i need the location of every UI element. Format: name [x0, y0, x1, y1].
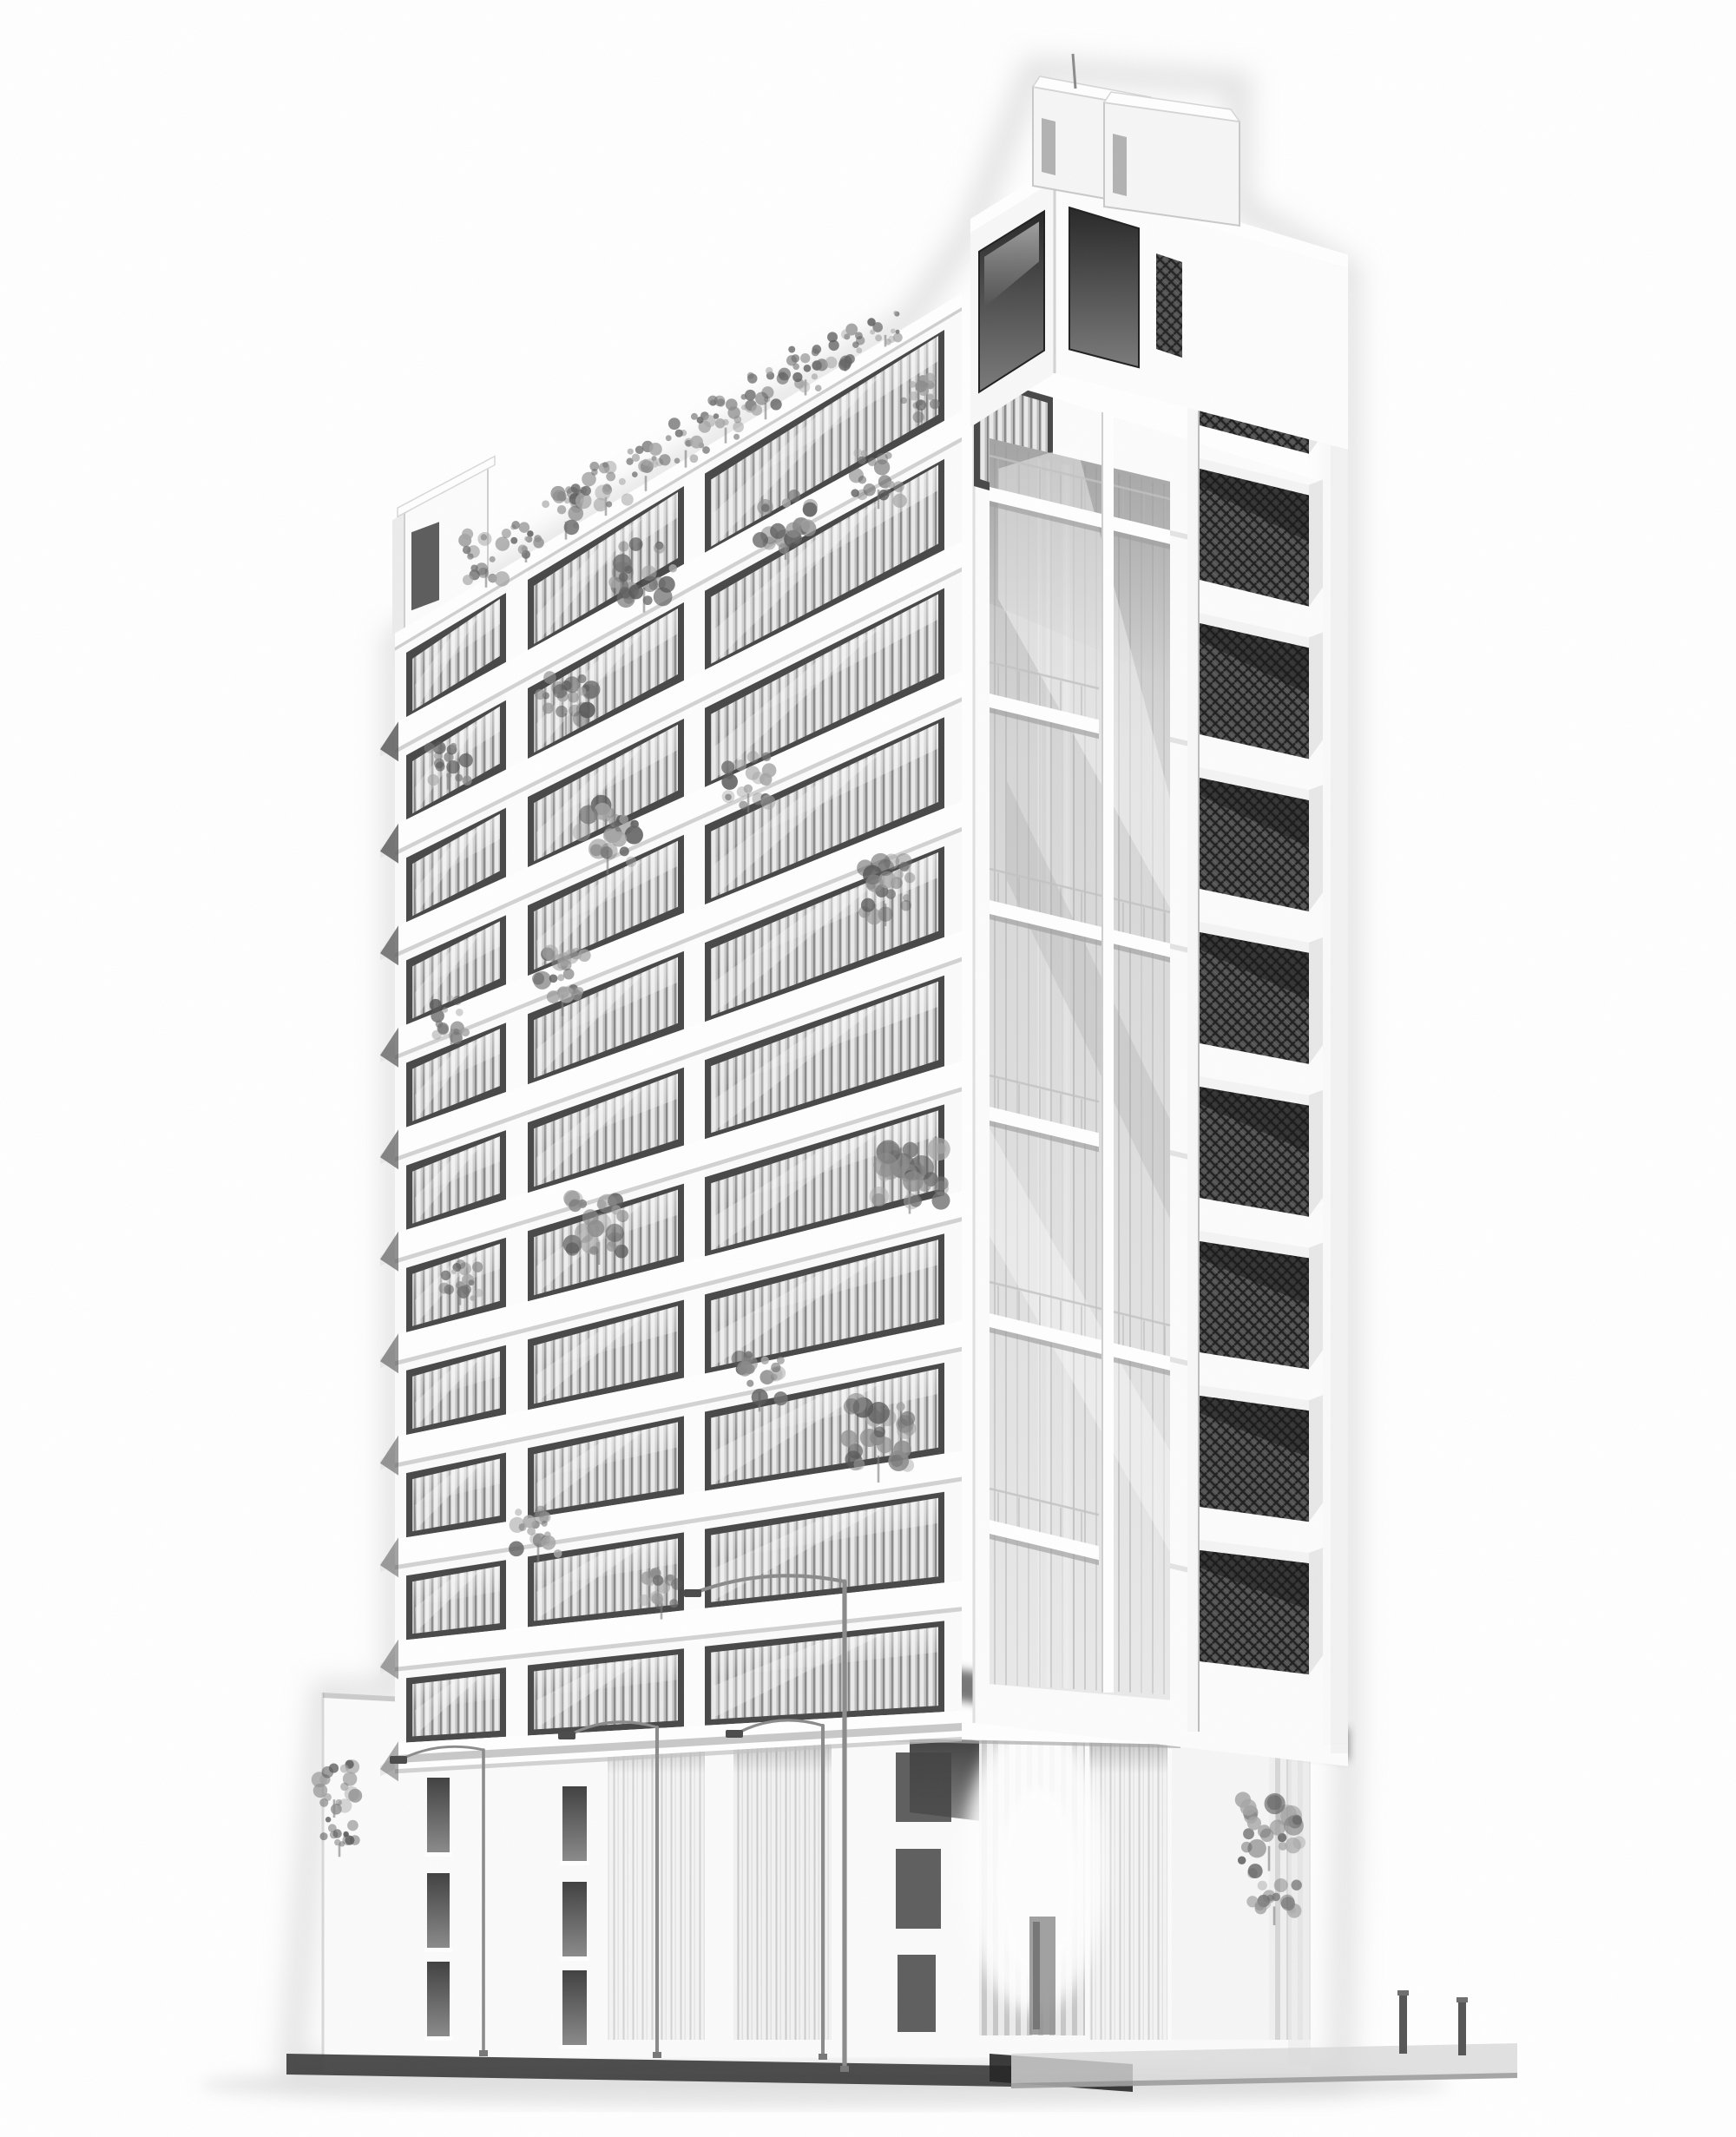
paper-grain: [0, 0, 1736, 2137]
grain-layer: [0, 0, 1736, 2137]
scene-svg: [0, 0, 1736, 2137]
architectural-rendering: Pencil-sketch architectural rendering of…: [0, 0, 1736, 2137]
